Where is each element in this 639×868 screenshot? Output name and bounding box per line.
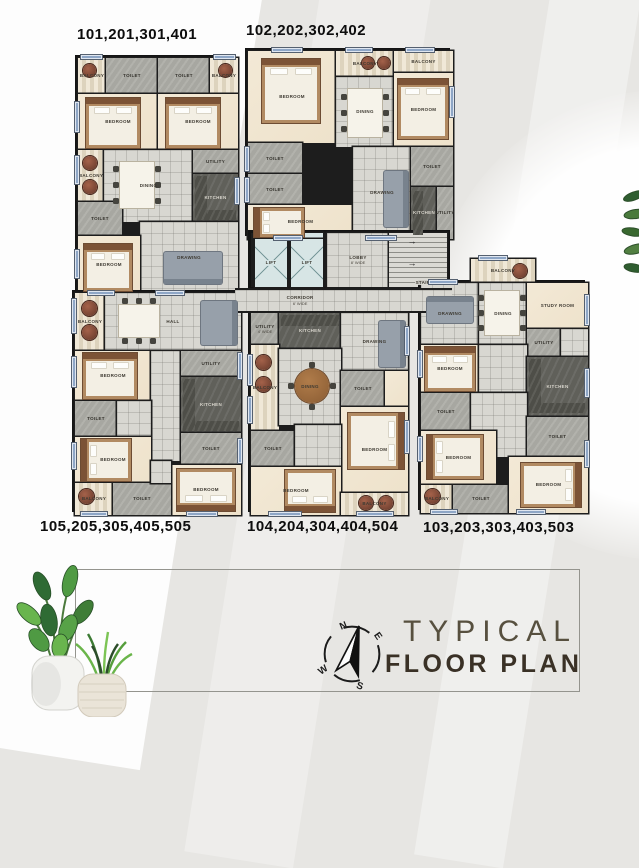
chair [150,298,156,304]
window [406,48,434,52]
chair [155,198,161,204]
room-label: BALCONY [79,173,103,178]
pillow [116,107,132,114]
pillow [388,421,395,438]
compass-n: N [338,620,349,633]
chair [288,383,294,389]
window [245,147,249,171]
room-label: BALCONY [362,501,386,506]
pillow [210,495,227,502]
room-toilet: TOILET [158,58,210,94]
window [585,441,589,467]
room-label: KITCHEN [299,328,321,333]
room-label: DRAWING [363,339,387,344]
chair [520,310,526,316]
room-label: KITCHEN [413,210,435,215]
chair [150,338,156,344]
pillow [432,356,447,363]
room-label: TOILET [175,73,193,78]
plant-pot [83,156,97,170]
kitchen-counter [207,210,236,220]
room-label: BALCONY [80,73,104,78]
pillow [295,68,312,75]
room-utility: UTILITY [181,351,241,377]
room-cream [385,371,408,407]
sofa-back [403,171,408,227]
window [405,327,409,355]
unit-label-105: 105,205,305,405,505 [40,518,191,535]
room-label: BEDROOM [288,219,314,224]
window [585,295,589,325]
window [366,236,396,240]
window [248,397,252,423]
room-label: BALCONY [491,268,515,273]
kitchen-counter [281,315,339,326]
room-label: BEDROOM [283,488,309,493]
chair [122,338,128,344]
window [238,353,242,379]
pillow [426,88,441,95]
pillow [313,496,328,503]
pillow [91,253,105,260]
pillow [111,253,125,260]
bed-headboard [398,413,404,469]
room-label: BEDROOM [411,107,437,112]
bed-headboard [427,435,433,479]
pillow [565,488,572,501]
unit-label-104: 104,204,304,404,504 [247,518,398,535]
sofa-back [232,301,237,345]
window [357,512,393,516]
pillow [565,469,572,482]
window [269,512,301,516]
pillow [388,444,395,461]
kitchen-counter [183,379,195,431]
compass-e: E [371,630,384,642]
room-label: BEDROOM [185,119,211,124]
unit-103: BALCONYDRAWINGDININGSTUDY ROOMUTILITYBED… [418,280,585,510]
room-tile [479,345,527,393]
plant-pot [378,57,390,69]
plant-pot [256,355,271,370]
window [418,351,422,377]
room-label: TOILET [91,216,109,221]
unit-corridor: CORRIDOR6' WIDE [235,288,452,313]
pillow [91,362,107,369]
room-label: TOILET [266,187,284,192]
pillow [263,224,270,233]
room-label: BEDROOM [437,366,463,371]
room-label: UTILITY [435,210,454,215]
chair [122,298,128,304]
room-label: TOILET [472,496,490,501]
bed-headboard [84,244,132,250]
room-lift: LIFT [255,239,287,287]
room-label: UTILITY [201,361,220,366]
pillow [263,212,270,221]
room-label: BALCONY [212,73,236,78]
pillow [292,496,307,503]
pillow [436,460,443,473]
room-label: DINING [140,183,158,188]
window [238,439,242,463]
room-label: BALCONY [82,496,106,501]
room-toilet: TOILET [248,174,302,205]
room-label: STUDY ROOM [541,303,574,308]
room-label: DRAWING [438,311,462,316]
room-toilet: TOILET [527,417,588,457]
window [245,178,249,202]
potted-plants [12,564,142,717]
chair [478,310,484,316]
room-label: DINING [301,384,319,389]
room-toilet: TOILET [341,371,385,407]
window [272,48,302,52]
bed-headboard [425,347,475,353]
room-size-label: 8' WIDE [351,260,366,265]
room-label: BALCONY [253,385,277,390]
unit-101: BALCONYTOILETTOILETBALCONYBEDROOMBEDROOM… [75,55,235,290]
room-balcony: BALCONY [421,485,453,513]
room-tile [117,401,151,437]
chair [341,126,347,132]
room-utility: UTILITY [527,329,561,357]
pillow [453,356,468,363]
room-staircase: STAIRCASE [389,233,447,287]
pillow [174,107,190,114]
room-label: BEDROOM [100,457,126,462]
sofa-back [164,279,222,284]
chair [478,325,484,331]
window [88,291,114,295]
bed-headboard [86,98,140,104]
window [346,48,372,52]
dining-table [119,305,159,337]
bed-headboard [83,353,137,359]
room-label: TOILET [264,446,282,451]
pillow [113,362,129,369]
bed-headboard [254,208,260,237]
bed [262,59,320,123]
room-size-label: 4' WIDE [258,329,273,334]
room-tile [151,351,181,461]
room-tile [561,329,588,357]
room-label: UTILITY [206,159,225,164]
unit-label-101: 101,201,301,401 [77,26,197,43]
compass-s: S [355,680,365,692]
room-toilet: TOILET [248,143,302,174]
pillow [436,441,443,454]
room-label: KITCHEN [546,384,568,389]
chair [155,166,161,172]
chair [113,166,119,172]
kitchen-counter [195,421,239,431]
pillow [270,68,287,75]
window [517,510,545,514]
room-label: DINING [494,311,512,316]
bed-headboard [177,505,235,511]
unit-102: BEDROOMBALCONYDININGBALCONYBEDROOMTOILET… [245,48,450,236]
room-label: DRAWING [370,190,394,195]
window [235,178,239,204]
chair [113,182,119,188]
kitchen-counter [541,403,585,413]
room-lift: LIFT [291,239,323,287]
plant-pot [82,325,97,340]
room-label: TOILET [87,416,105,421]
window [450,87,454,117]
room-toilet: TOILET [75,401,117,437]
pillow [90,463,97,476]
sofa-back [427,297,473,302]
window [214,55,235,59]
room-label: BALCONY [78,319,102,324]
room-label: BEDROOM [96,262,122,267]
title-text: TYPICAL FLOOR PLAN [385,615,577,679]
chair [113,198,119,204]
bed [84,244,132,291]
window [405,421,409,453]
bed-headboard [398,79,448,85]
chair [383,110,389,116]
room-toilet: TOILET [106,58,158,94]
room-label: TOILET [423,164,441,169]
chair [341,110,347,116]
kitchen-counter [529,359,541,413]
room-label: TOILET [437,409,455,414]
window [248,355,252,385]
room-label: KITCHEN [204,195,226,200]
room-label: BEDROOM [536,482,562,487]
window [72,357,76,387]
bed-headboard [166,98,220,104]
compass-icon: N E S W [314,616,390,692]
room-size-label: 6' WIDE [293,301,308,306]
room-label: BEDROOM [193,487,219,492]
room-label: TOILET [133,496,151,501]
plant-pot [83,180,97,194]
room-label: BALCONY [425,496,449,501]
room-toilet: TOILET [421,393,471,431]
window [156,291,184,295]
poster: { "unit_labels": { "u101": "101,201,301,… [0,0,639,717]
bed-headboard [575,463,581,507]
room-utility: UTILITY4' WIDE [251,313,279,345]
window [81,512,107,516]
chair [341,94,347,100]
chair [383,94,389,100]
window [418,437,422,461]
unit-label-102: 102,202,302,402 [246,22,366,39]
room-label: TOILET [202,446,220,451]
room-utility: UTILITY [193,150,238,174]
pillow [185,495,202,502]
room-label: TOILET [549,434,567,439]
room-tile [151,461,171,483]
unit-104: UTILITY4' WIDEKITCHENDRAWINGBALCONYDININ… [248,310,405,512]
sofa [427,297,473,323]
window [75,102,79,132]
pillow [90,445,97,458]
window [187,512,217,516]
sofa [201,301,237,345]
plant-pot [82,301,97,316]
window [429,280,457,284]
chair [136,338,142,344]
window [75,250,79,278]
room-label: DINING [356,109,374,114]
room-toilet: TOILET [411,147,453,187]
chair [309,362,315,368]
room-toilet: TOILET [181,433,241,465]
room-label: BEDROOM [279,94,305,99]
chair [383,126,389,132]
room-label: BEDROOM [446,455,472,460]
room-toilet: TOILET [78,202,122,236]
room-tile [295,425,341,467]
bed [348,413,404,469]
chair [136,298,142,304]
chair [309,404,315,410]
window [81,55,102,59]
room-toilet: TOILET [251,431,295,467]
room-label: BALCONY [411,59,435,64]
title-line-typical: TYPICAL [385,615,577,649]
chair [478,295,484,301]
pillow [94,107,110,114]
chair [330,383,336,389]
room-label: UTILITY [534,340,553,345]
window [585,369,589,397]
bed-headboard [262,59,320,65]
room-label: KITCHEN [200,402,222,407]
window [75,156,79,184]
unit-105: BALCONYHALLBEDROOMUTILITYKITCHENTOILETBE… [72,290,238,512]
pillow [196,107,212,114]
room-label: BEDROOM [105,119,131,124]
sofa [384,171,408,227]
chair [520,325,526,331]
bed-headboard [81,439,87,481]
window [479,256,507,260]
room-label: HALL [166,319,179,324]
window [274,236,302,240]
unit-label-103: 103,203,303,403,503 [423,519,574,536]
room-label: TOILET [354,386,372,391]
title-line-floor-plan: FLOOR PLAN [385,649,577,679]
room-lobby: LOBBY8' WIDE [327,233,389,287]
room-label: BEDROOM [100,373,126,378]
room-label: DRAWING [177,255,201,260]
window [72,443,76,469]
pillow [405,88,420,95]
room-label: LIFT [301,260,314,265]
window [72,299,76,333]
room-label: BEDROOM [362,447,388,452]
room-label: BALCONY [353,61,377,66]
room-toilet: TOILET [113,483,171,515]
room-toilet: TOILET [453,485,509,513]
room-label: TOILET [123,73,141,78]
window [431,510,457,514]
room-label: LIFT [265,260,278,265]
room-study-room: STUDY ROOM [527,283,588,329]
room-balcony: BALCONY [78,58,106,94]
chair [520,295,526,301]
room-balcony: BALCONY [394,51,453,73]
compass-w: W [316,663,331,678]
room-label: TOILET [266,156,284,161]
room-corridor: CORRIDOR6' WIDE [235,288,452,313]
